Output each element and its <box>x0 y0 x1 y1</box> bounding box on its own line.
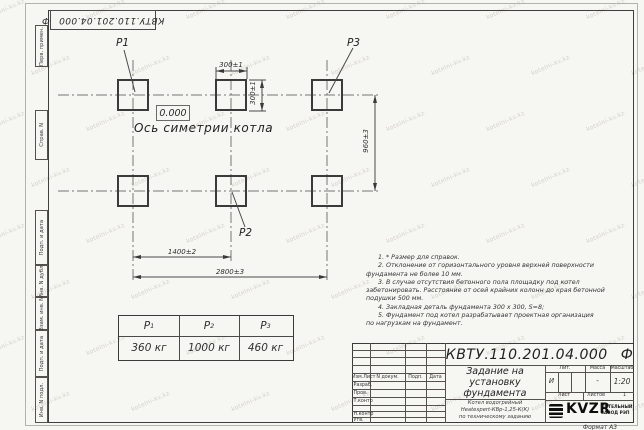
title-block-line <box>352 350 445 351</box>
load-table-header-p2: P2 <box>179 316 239 336</box>
note-line: 3. В случае отсутствия бетонного пола пл… <box>366 279 638 287</box>
title-block-line <box>558 372 559 392</box>
title-block-line <box>352 357 445 358</box>
drawing-subtitle: Котел водогрейный Heatexpert-КВр-1,25-К(… <box>446 400 544 421</box>
foundation-pads <box>118 80 342 206</box>
rev-col-izm-list: Изм.Лист <box>352 375 370 380</box>
leader-lines <box>124 48 353 227</box>
drawing-sheet: kotelni-kv.kzkotelni-kv.kzkotelni-kv.kzk… <box>0 0 644 430</box>
dim-300-height: 300±1 <box>249 78 257 108</box>
note-line: 4. Закладная деталь фундамента 300 х 300… <box>366 304 638 312</box>
note-line: забетонировать. Расстояние от осей крайн… <box>366 287 638 295</box>
load-table-header-p3: P3 <box>239 316 292 336</box>
title-block-line <box>545 372 634 373</box>
load-table-header-p1: P1 <box>119 316 179 336</box>
title-block-doc-number: КВТУ.110.201.04.000Ф <box>447 345 632 364</box>
format-label: Формат А3 <box>560 424 640 430</box>
load-value-p1: 360 кг <box>119 336 179 359</box>
dim-2800-span: 2800±3 <box>205 268 255 276</box>
mass-value: - <box>585 377 610 385</box>
title-block-line <box>352 405 445 406</box>
sheets-value: 1 <box>623 393 626 398</box>
boiler-symmetry-axis-label: Ось симетрии котла <box>134 121 273 135</box>
note-line: фундамента не более 10 мм. <box>366 271 638 279</box>
role-utv: Утв. <box>354 418 364 423</box>
note-line: 2. Отклонение от горизонтального уровня … <box>366 262 638 270</box>
role-prov: Пров. <box>354 391 368 396</box>
pad-label-p1: P1 <box>116 37 129 49</box>
note-line: 1. * Размер для справок. <box>366 254 638 262</box>
scale-value: 1:20 <box>610 377 634 386</box>
dim-1400-span: 1400±2 <box>157 248 207 256</box>
rev-col-podp: Подп. <box>405 375 426 380</box>
load-value-p3: 460 кг <box>239 336 292 359</box>
title-block-line <box>352 417 445 418</box>
dim-300-width: 300±1 <box>206 61 256 69</box>
technical-notes: 1. * Размер для справок. 2. Отклонение о… <box>366 254 638 329</box>
pad-label-p2: P2 <box>239 227 252 239</box>
rev-col-data: Дата <box>426 375 445 380</box>
lit-value: И <box>545 377 558 385</box>
kvzr-logo-tagline: КОТЕЛЬНЫЙ ЗАВОД РЭП <box>601 405 633 416</box>
elevation-mark: 0.000 <box>156 105 190 121</box>
sheets-label: Листов <box>587 393 605 398</box>
role-tkontr: Т.контр <box>354 399 373 404</box>
lit-label: Лит. <box>545 366 585 371</box>
load-table: P1 P2 P3 360 кг 1000 кг 460 кг <box>118 315 294 361</box>
pad-label-p3: P3 <box>347 37 360 49</box>
dim-960-vertical: 960±3 <box>362 121 370 161</box>
drawing-title: Задание на установку фундамента <box>446 366 544 398</box>
title-block-line <box>571 372 572 392</box>
role-nkontr: Н.контр <box>354 412 374 417</box>
mass-label: Масса <box>585 366 610 371</box>
centerlines <box>58 60 378 282</box>
scale-label: Масштаб <box>610 366 634 371</box>
title-block-line <box>583 392 584 400</box>
rev-col-n-dokum: N докум. <box>370 375 405 380</box>
kvzr-logo-icon <box>549 404 563 418</box>
sheet-label: Лист <box>545 393 583 398</box>
note-line: по нагрузкам на фундамент. <box>366 320 638 328</box>
note-line: подушки 500 мм. <box>366 295 638 303</box>
note-line: 5. Фундамент под котел разрабатывает про… <box>366 312 638 320</box>
role-razrab: Разраб. <box>354 383 373 388</box>
load-value-p2: 1000 кг <box>179 336 239 359</box>
